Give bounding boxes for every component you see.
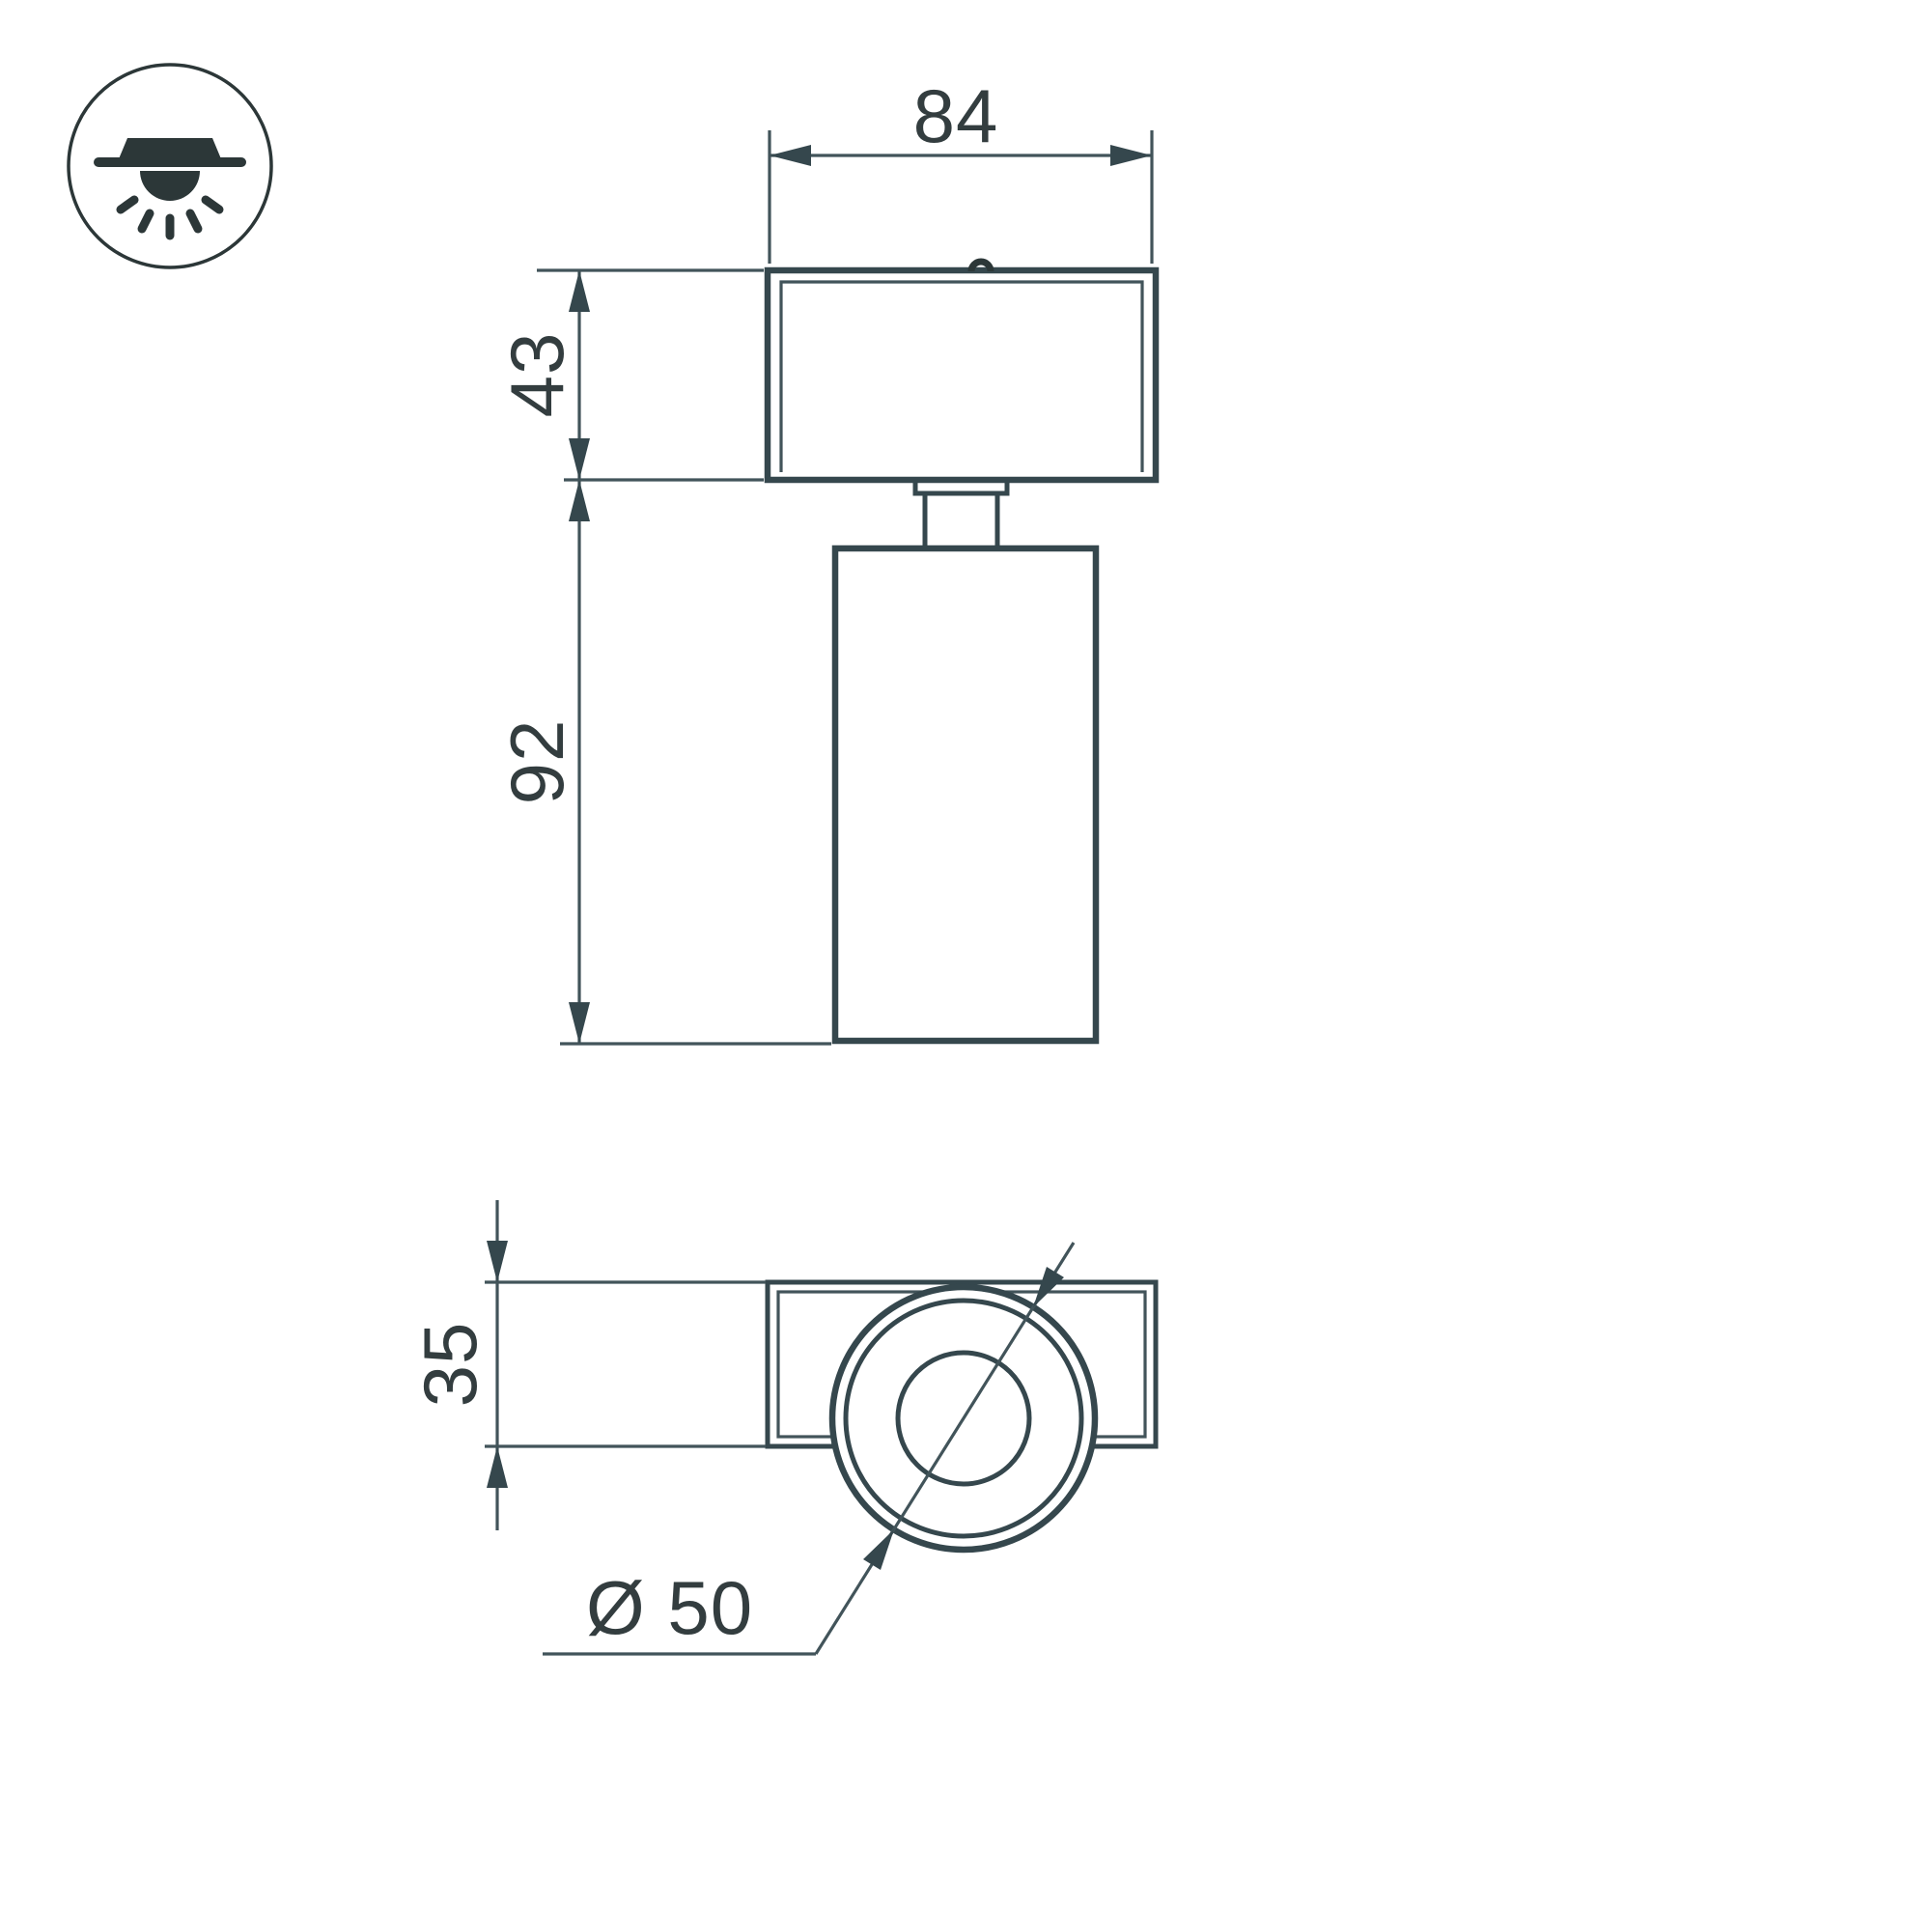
arrowhead-lower [863, 1529, 894, 1570]
dimension-label-width: 84 [913, 73, 999, 158]
dimension-label-body-height: 92 [494, 719, 579, 805]
dimension-depth-35: 35 [407, 1200, 766, 1530]
dimension-label-diameter: Ø 50 [586, 1565, 753, 1650]
arrowhead-right [1110, 145, 1152, 166]
technical-drawing: 84 43 92 [0, 0, 1932, 1932]
dimension-label-depth: 35 [407, 1322, 492, 1408]
surface-ceiling-mount-light-icon [69, 65, 271, 267]
dimension-width-84: 84 [770, 73, 1152, 264]
dimension-adapter-height-43: 43 [494, 270, 764, 480]
arrowhead-bottom [569, 1002, 590, 1044]
icon-lamp-dome [140, 171, 200, 201]
icon-light-rays [121, 200, 219, 236]
arrowhead-top [569, 480, 590, 521]
arrowhead-top [569, 270, 590, 312]
spot-cylinder-body [835, 548, 1096, 1041]
track-adapter-housing [768, 270, 1156, 480]
drawing-canvas: 84 43 92 [0, 0, 1932, 1932]
arrowhead-bottom [487, 1446, 508, 1488]
arrowhead-top [487, 1241, 508, 1282]
icon-ceiling-bar [94, 157, 246, 167]
plan-view: 35 Ø 50 [407, 1200, 1156, 1654]
dimension-body-height-92: 92 [494, 480, 831, 1044]
dimension-label-adapter-height: 43 [494, 332, 579, 418]
swivel-flange [915, 483, 1007, 493]
arrowhead-left [770, 145, 811, 166]
arrowhead-bottom [569, 438, 590, 480]
front-view: 84 43 92 [494, 73, 1156, 1044]
